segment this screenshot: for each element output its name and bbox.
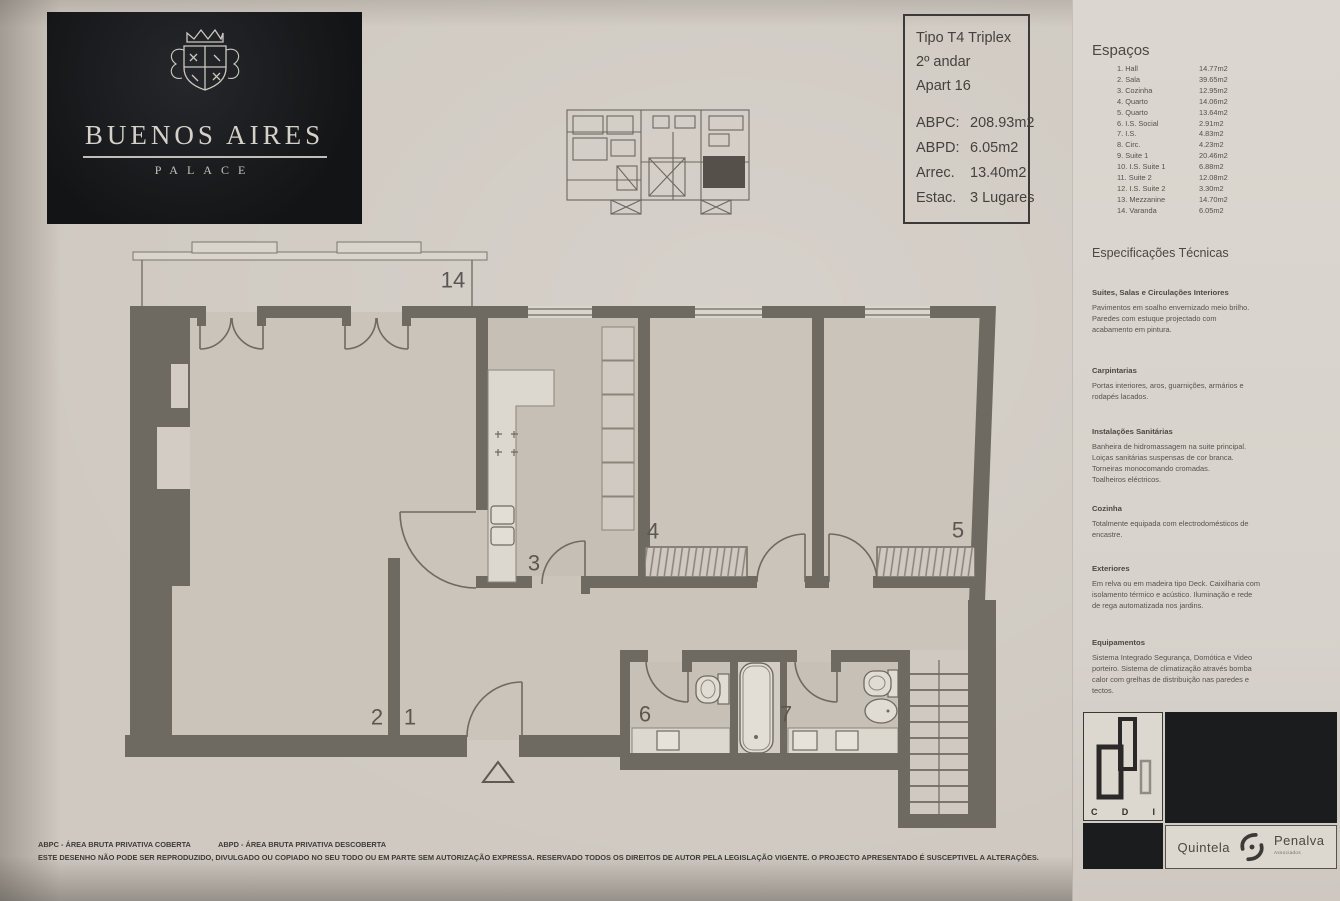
spec-body: Pavimentos em soalho envernizado meio br… bbox=[1092, 302, 1298, 335]
espacos-row: 7. I.S. 4.83m2 bbox=[1117, 129, 1269, 140]
room-area: 6.05m2 bbox=[1199, 206, 1224, 217]
spec-section: Equipamentos Sistema Integrado Segurança… bbox=[1092, 638, 1298, 696]
plan-room-label: 7 bbox=[780, 702, 792, 728]
room-name: 13. Mezzanine bbox=[1117, 195, 1199, 206]
espacos-row: 12. I.S. Suite 2 3.30m2 bbox=[1117, 184, 1269, 195]
espacos-list: 1. Hall 14.77m2 2. Sala 39.65m2 3. Cozin… bbox=[1117, 64, 1269, 217]
metric-value: 13.40m2 bbox=[970, 161, 1026, 186]
room-name: 5. Quarto bbox=[1117, 108, 1199, 119]
espacos-row: 2. Sala 39.65m2 bbox=[1117, 75, 1269, 86]
room-area: 14.77m2 bbox=[1199, 64, 1228, 75]
unit-type-lines: Tipo T4 Triplex2º andarApart 16 bbox=[916, 26, 1028, 98]
metric-value: 208.93m2 bbox=[970, 111, 1035, 136]
espacos-row: 1. Hall 14.77m2 bbox=[1117, 64, 1269, 75]
room-name: 6. I.S. Social bbox=[1117, 119, 1199, 130]
plan-room-label: 14 bbox=[441, 268, 465, 294]
cdi-letter: D bbox=[1122, 807, 1129, 817]
agency-name-right: Penalva bbox=[1274, 835, 1324, 847]
buenos-aires-logo: BUENOS AIRES PALACE bbox=[47, 12, 362, 224]
spec-section: Carpintarias Portas interiores, aros, gu… bbox=[1092, 366, 1298, 402]
room-name: 1. Hall bbox=[1117, 64, 1199, 75]
spec-heading: Suites, Salas e Circulações Interiores bbox=[1092, 288, 1298, 297]
spec-body: Banheira de hidromassagem na suite princ… bbox=[1092, 441, 1298, 485]
bathtub bbox=[740, 663, 773, 753]
unit-type-line: 2º andar bbox=[916, 50, 1028, 74]
metric-row: ABPD: 6.05m2 bbox=[916, 136, 1028, 161]
plan-room-label: 4 bbox=[647, 519, 659, 545]
room-area: 12.08m2 bbox=[1199, 173, 1228, 184]
brand-block: CDI Quintela Penalva Associados bbox=[1083, 712, 1337, 869]
plan-room-label: 2 bbox=[371, 705, 383, 731]
espacos-row: 10. I.S. Suite 1 6.88m2 bbox=[1117, 162, 1269, 173]
espacos-row: 3. Cozinha 12.95m2 bbox=[1117, 86, 1269, 97]
kitchen-cabinets bbox=[602, 327, 634, 530]
spec-heading: Equipamentos bbox=[1092, 638, 1298, 647]
espacos-row: 11. Suite 2 12.08m2 bbox=[1117, 173, 1269, 184]
metric-label: ABPD: bbox=[916, 136, 970, 161]
unit-type-line: Apart 16 bbox=[916, 74, 1028, 98]
metric-row: ABPC: 208.93m2 bbox=[916, 111, 1028, 136]
espacos-title: Espaços bbox=[1092, 42, 1150, 59]
room-area: 14.06m2 bbox=[1199, 97, 1228, 108]
unit-metrics: ABPC: 208.93m2 ABPD: 6.05m2 Arrec. 13.40… bbox=[916, 111, 1028, 211]
room-name: 12. I.S. Suite 2 bbox=[1117, 184, 1199, 195]
brand-black-cell bbox=[1083, 823, 1163, 869]
agency-subtitle: Associados bbox=[1274, 847, 1301, 859]
logo-title: BUENOS AIRES bbox=[47, 120, 362, 151]
metric-value: 6.05m2 bbox=[970, 136, 1018, 161]
room-name: 14. Varanda bbox=[1117, 206, 1199, 217]
footer-abbr-abpc: ABPC - ÁREA BRUTA PRIVATIVA COBERTA bbox=[38, 840, 191, 849]
room-area: 13.64m2 bbox=[1199, 108, 1228, 119]
logo-rule bbox=[83, 156, 327, 158]
agency-swirl-icon bbox=[1237, 831, 1267, 863]
cdi-letter: C bbox=[1091, 807, 1098, 817]
cdi-logo: CDI bbox=[1083, 712, 1163, 821]
brand-black-panel bbox=[1165, 712, 1337, 823]
metric-row: Arrec. 13.40m2 bbox=[916, 161, 1028, 186]
room-area: 4.83m2 bbox=[1199, 129, 1224, 140]
document-sheet: BUENOS AIRES PALACE Tipo T4 Triplex2º an… bbox=[0, 0, 1340, 901]
specs-title: Especificações Técnicas bbox=[1092, 246, 1229, 260]
cdi-letter: I bbox=[1152, 807, 1155, 817]
espacos-row: 4. Quarto 14.06m2 bbox=[1117, 97, 1269, 108]
room-area: 12.95m2 bbox=[1199, 86, 1228, 97]
espacos-row: 8. Circ. 4.23m2 bbox=[1117, 140, 1269, 151]
cdi-letters: CDI bbox=[1084, 807, 1162, 817]
espacos-row: 6. I.S. Social 2.91m2 bbox=[1117, 119, 1269, 130]
footer-abbr-abpd: ABPD - ÁREA BRUTA PRIVATIVA DESCOBERTA bbox=[218, 840, 386, 849]
metric-value: 3 Lugares bbox=[970, 186, 1035, 211]
espacos-row: 5. Quarto 13.64m2 bbox=[1117, 108, 1269, 119]
footer-disclaimer: ESTE DESENHO NÃO PODE SER REPRODUZIDO, D… bbox=[38, 853, 1039, 862]
espacos-row: 14. Varanda 6.05m2 bbox=[1117, 206, 1269, 217]
spec-section: Cozinha Totalmente equipada com electrod… bbox=[1092, 504, 1298, 540]
logo-subtitle: PALACE bbox=[47, 163, 362, 178]
espacos-row: 9. Suite 1 20.46m2 bbox=[1117, 151, 1269, 162]
bidet bbox=[865, 699, 897, 723]
agency-name-left: Quintela bbox=[1178, 840, 1230, 855]
unit-info-box: Tipo T4 Triplex2º andarApart 16 ABPC: 20… bbox=[903, 14, 1030, 224]
plan-room-label: 5 bbox=[952, 518, 964, 544]
key-plan-highlight bbox=[703, 156, 745, 188]
espacos-row: 13. Mezzanine 14.70m2 bbox=[1117, 195, 1269, 206]
plan-room-label: 3 bbox=[528, 551, 540, 577]
spec-heading: Exteriores bbox=[1092, 564, 1298, 573]
spec-heading: Carpintarias bbox=[1092, 366, 1298, 375]
plan-room-label: 6 bbox=[639, 702, 651, 728]
cdi-mark-icon bbox=[1084, 713, 1161, 801]
room-area: 39.65m2 bbox=[1199, 75, 1228, 86]
crest-icon bbox=[135, 26, 275, 112]
metric-row: Estac. 3 Lugares bbox=[916, 186, 1028, 211]
room-name: 11. Suite 2 bbox=[1117, 173, 1199, 184]
plan-room-label: 1 bbox=[404, 705, 416, 731]
windows bbox=[528, 306, 930, 318]
room-name: 4. Quarto bbox=[1117, 97, 1199, 108]
spec-body: Sistema Integrado Segurança, Domótica e … bbox=[1092, 652, 1298, 696]
room-area: 4.23m2 bbox=[1199, 140, 1224, 151]
metric-label: Arrec. bbox=[916, 161, 970, 186]
spec-section: Suites, Salas e Circulações Interiores P… bbox=[1092, 288, 1298, 335]
floor-plan bbox=[118, 235, 1008, 835]
entry-marker bbox=[483, 762, 513, 782]
room-name: 8. Circ. bbox=[1117, 140, 1199, 151]
balcony bbox=[133, 242, 487, 260]
spec-body: Em relva ou em madeira tipo Deck. Caixil… bbox=[1092, 578, 1298, 611]
room-area: 20.46m2 bbox=[1199, 151, 1228, 162]
metric-label: ABPC: bbox=[916, 111, 970, 136]
unit-type-line: Tipo T4 Triplex bbox=[916, 26, 1028, 50]
metric-label: Estac. bbox=[916, 186, 970, 211]
room-area: 2.91m2 bbox=[1199, 119, 1224, 130]
room-name: 3. Cozinha bbox=[1117, 86, 1199, 97]
room-name: 2. Sala bbox=[1117, 75, 1199, 86]
room-area: 3.30m2 bbox=[1199, 184, 1224, 195]
spec-section: Exteriores Em relva ou em madeira tipo D… bbox=[1092, 564, 1298, 611]
spec-section: Instalações Sanitárias Banheira de hidro… bbox=[1092, 427, 1298, 485]
room-area: 14.70m2 bbox=[1199, 195, 1228, 206]
spec-body: Totalmente equipada com electrodoméstico… bbox=[1092, 518, 1298, 540]
room-area: 6.88m2 bbox=[1199, 162, 1224, 173]
spec-body: Portas interiores, aros, guarnições, arm… bbox=[1092, 380, 1298, 402]
room-name: 7. I.S. bbox=[1117, 129, 1199, 140]
spec-heading: Instalações Sanitárias bbox=[1092, 427, 1298, 436]
spec-heading: Cozinha bbox=[1092, 504, 1298, 513]
room-name: 10. I.S. Suite 1 bbox=[1117, 162, 1199, 173]
quintela-penalva-logo: Quintela Penalva Associados bbox=[1165, 825, 1337, 869]
room-name: 9. Suite 1 bbox=[1117, 151, 1199, 162]
key-plan bbox=[553, 100, 763, 226]
